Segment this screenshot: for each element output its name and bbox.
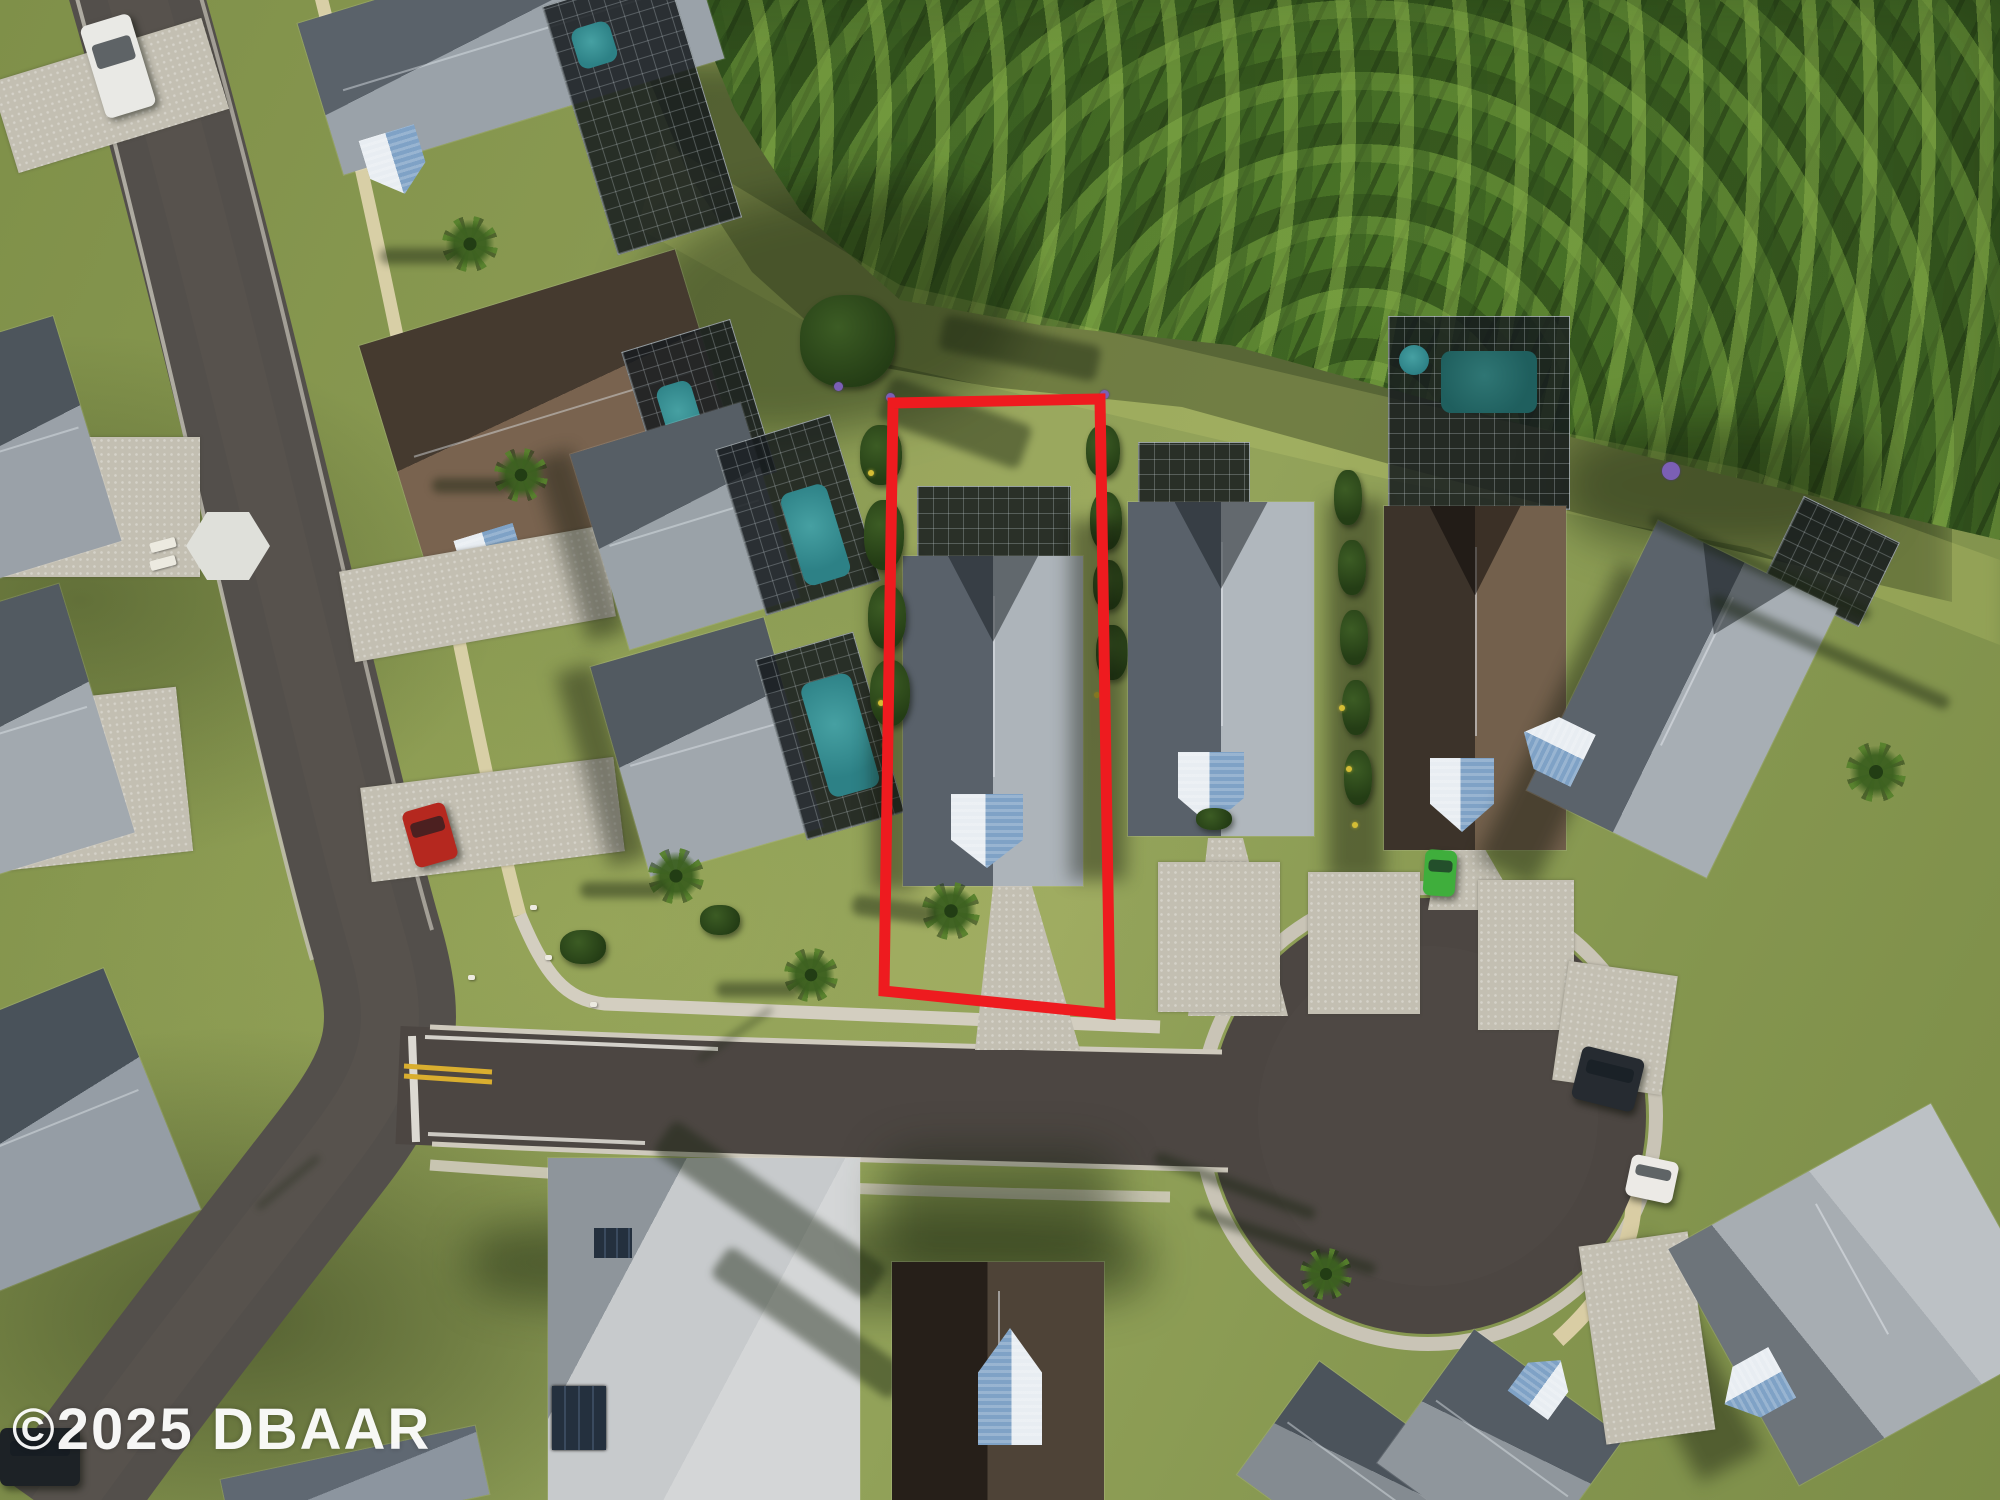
- aerial-photo: ©2025 DBAAR: [0, 0, 2000, 1500]
- highlight-layer: [0, 0, 2000, 1500]
- watermark: ©2025 DBAAR: [12, 1396, 431, 1463]
- property-boundary-outline: [884, 399, 1110, 1014]
